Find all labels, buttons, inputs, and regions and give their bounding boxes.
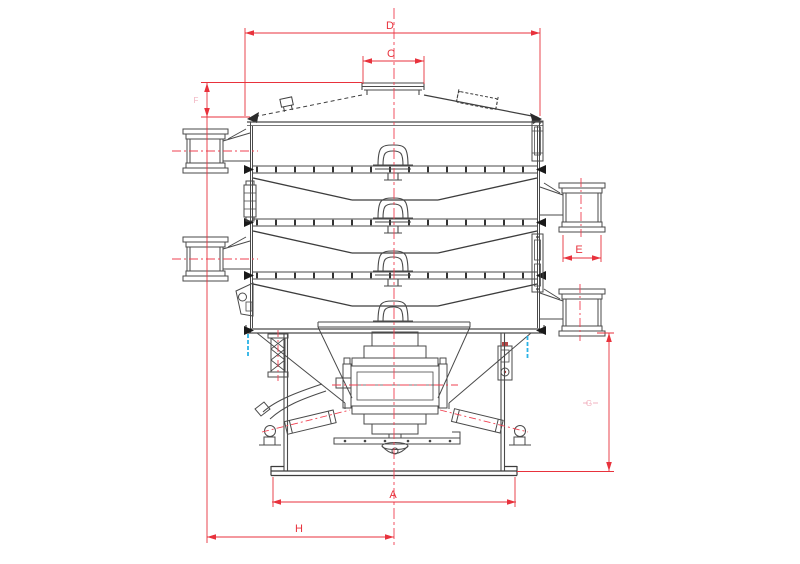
discharge-hose [255,384,326,419]
dimensions [201,28,614,543]
centerlines [172,8,581,545]
label-a: A [389,489,397,501]
screen-deck-1 [244,145,546,200]
screen-deck-2 [244,198,546,253]
outlet-right-upper [540,183,605,232]
lid-clamp-fitting [280,97,294,112]
deck1-center-dome [373,145,413,180]
top-cover [247,89,542,124]
bottom-dome [373,301,413,322]
left-damper [259,410,336,445]
vibrating-screen-technical-drawing: D C F E G A H [0,0,800,564]
drawing-canvas: D C F E G A H [0,0,800,564]
dimension-d [245,28,540,116]
eccentric-weight [334,432,460,454]
label-d: D [386,20,394,32]
outlet-right-lower [540,289,605,336]
label-h: H [295,523,303,535]
lid-left-corner-arrow [247,112,259,123]
label-e: E [575,244,582,256]
dimension-c [363,56,424,84]
screen-deck-3 [244,251,546,306]
dimension-h [207,534,394,540]
inlet-port [362,83,424,95]
deck1-funnel [253,178,537,200]
dimension-g [517,333,614,472]
label-f: F [194,96,199,105]
label-g: G [586,399,592,408]
right-damper [451,409,531,445]
deck2-center-dome [373,198,413,233]
lid-nozzle-fitting [456,89,498,110]
deck2-funnel [253,231,537,253]
deck3-funnel [253,284,537,306]
label-c: C [387,48,395,60]
deck3-center-dome [373,251,413,286]
